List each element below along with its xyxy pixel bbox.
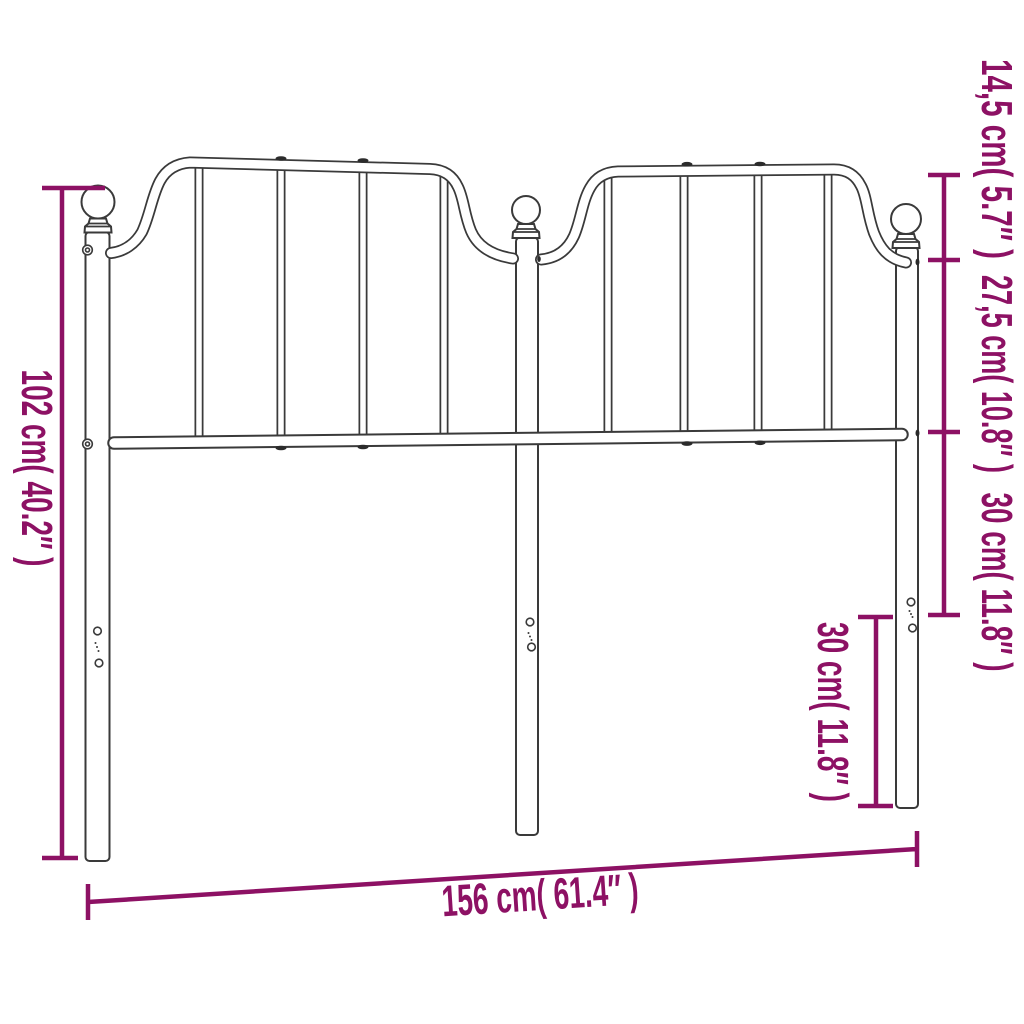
dimension-label-leg-height: 30 cm( 11.8″ ) — [808, 622, 857, 802]
dimension-label-total-width: 156 cm( 61.4″ ) — [440, 865, 640, 927]
headboard-posts — [86, 232, 919, 861]
dimension-line-right-segments — [928, 175, 960, 615]
center-finial — [512, 196, 540, 238]
left-post — [86, 232, 110, 861]
product-dimension-diagram: 102 cm( 40.2″ ) 14,5 cm( 5.7″ ) 27,5 cm(… — [0, 0, 1024, 1024]
right-finial — [891, 204, 921, 248]
center-post — [516, 238, 538, 836]
weld-dots — [276, 156, 920, 450]
dimension-label-top-curve-height: 14,5 cm( 5.7″ ) — [972, 59, 1021, 259]
dimension-label-lower-section-height: 30 cm( 11.8″ ) — [972, 493, 1021, 672]
headboard-drawing — [82, 156, 922, 861]
headboard-top-rails — [111, 163, 906, 263]
dimension-label-panel-height: 27,5 cm( 10.8″ ) — [972, 275, 1021, 473]
headboard-diagram-svg: 102 cm( 40.2″ ) 14,5 cm( 5.7″ ) 27,5 cm(… — [0, 0, 1024, 1024]
dimension-label-total-height: 102 cm( 40.2″ ) — [12, 370, 61, 567]
mounting-holes — [94, 598, 917, 667]
left-finial — [82, 186, 115, 233]
right-post — [896, 247, 918, 808]
dimension-line-leg-height — [858, 617, 893, 806]
headboard-bottom-rail — [114, 435, 902, 444]
